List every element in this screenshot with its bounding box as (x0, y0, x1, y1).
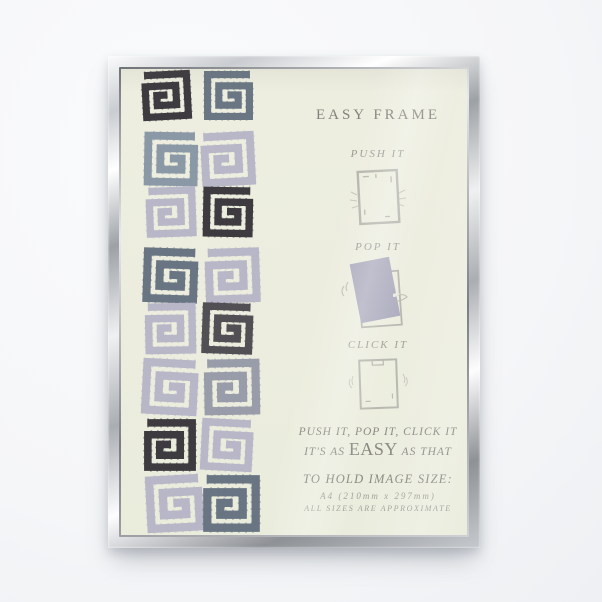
size-heading: TO HOLD IMAGE SIZE: (289, 472, 467, 487)
push-frame-icon (289, 166, 467, 228)
click-it-label: CLICK IT (289, 339, 467, 351)
photo-frame: EASY FRAME PUSH IT (108, 56, 480, 548)
step-pop: POP IT (289, 241, 467, 334)
spiral-motif (199, 417, 256, 474)
tagline-suffix: AS THAT (398, 446, 452, 458)
spiral-motif (140, 356, 201, 417)
tagline-line2: IT'S AS EASY AS THAT (289, 440, 467, 458)
pop-it-label: POP IT (289, 241, 467, 253)
spiral-motif (144, 185, 198, 239)
spiral-motif (202, 474, 261, 533)
spiral-motif (143, 418, 197, 472)
spiral-motif (202, 357, 261, 416)
spiral-motif (200, 301, 255, 356)
spiral-motif (141, 246, 200, 305)
spiral-motif (203, 70, 254, 121)
size-note: ALL SIZES ARE APPROXIMATE (289, 504, 467, 513)
step-push: PUSH IT (289, 148, 467, 228)
spiral-pattern (143, 72, 265, 535)
spiral-motif (143, 130, 200, 187)
spiral-motif (140, 69, 194, 122)
instruction-column: EASY FRAME PUSH IT (289, 69, 467, 535)
click-frame-icon (289, 355, 467, 413)
spiral-motif (144, 302, 198, 356)
scene-background: EASY FRAME PUSH IT (0, 0, 602, 602)
insert-paper: EASY FRAME PUSH IT (121, 69, 467, 535)
spiral-motif (199, 129, 258, 188)
size-value: A4 (210mm x 297mm) (289, 491, 467, 501)
tagline-emphasis: EASY (349, 439, 398, 459)
spiral-motif (203, 246, 262, 305)
spiral-motif (143, 472, 205, 534)
spiral-motif (202, 186, 255, 239)
tagline-line1: PUSH IT, POP IT, CLICK IT (289, 426, 467, 438)
tagline-prefix: IT'S AS (304, 446, 349, 458)
frame-inner-lip: EASY FRAME PUSH IT (119, 67, 469, 537)
push-it-label: PUSH IT (289, 148, 467, 160)
step-click: CLICK IT (289, 339, 467, 413)
easy-frame-title: EASY FRAME (289, 107, 467, 124)
pop-paper-icon (289, 256, 467, 334)
